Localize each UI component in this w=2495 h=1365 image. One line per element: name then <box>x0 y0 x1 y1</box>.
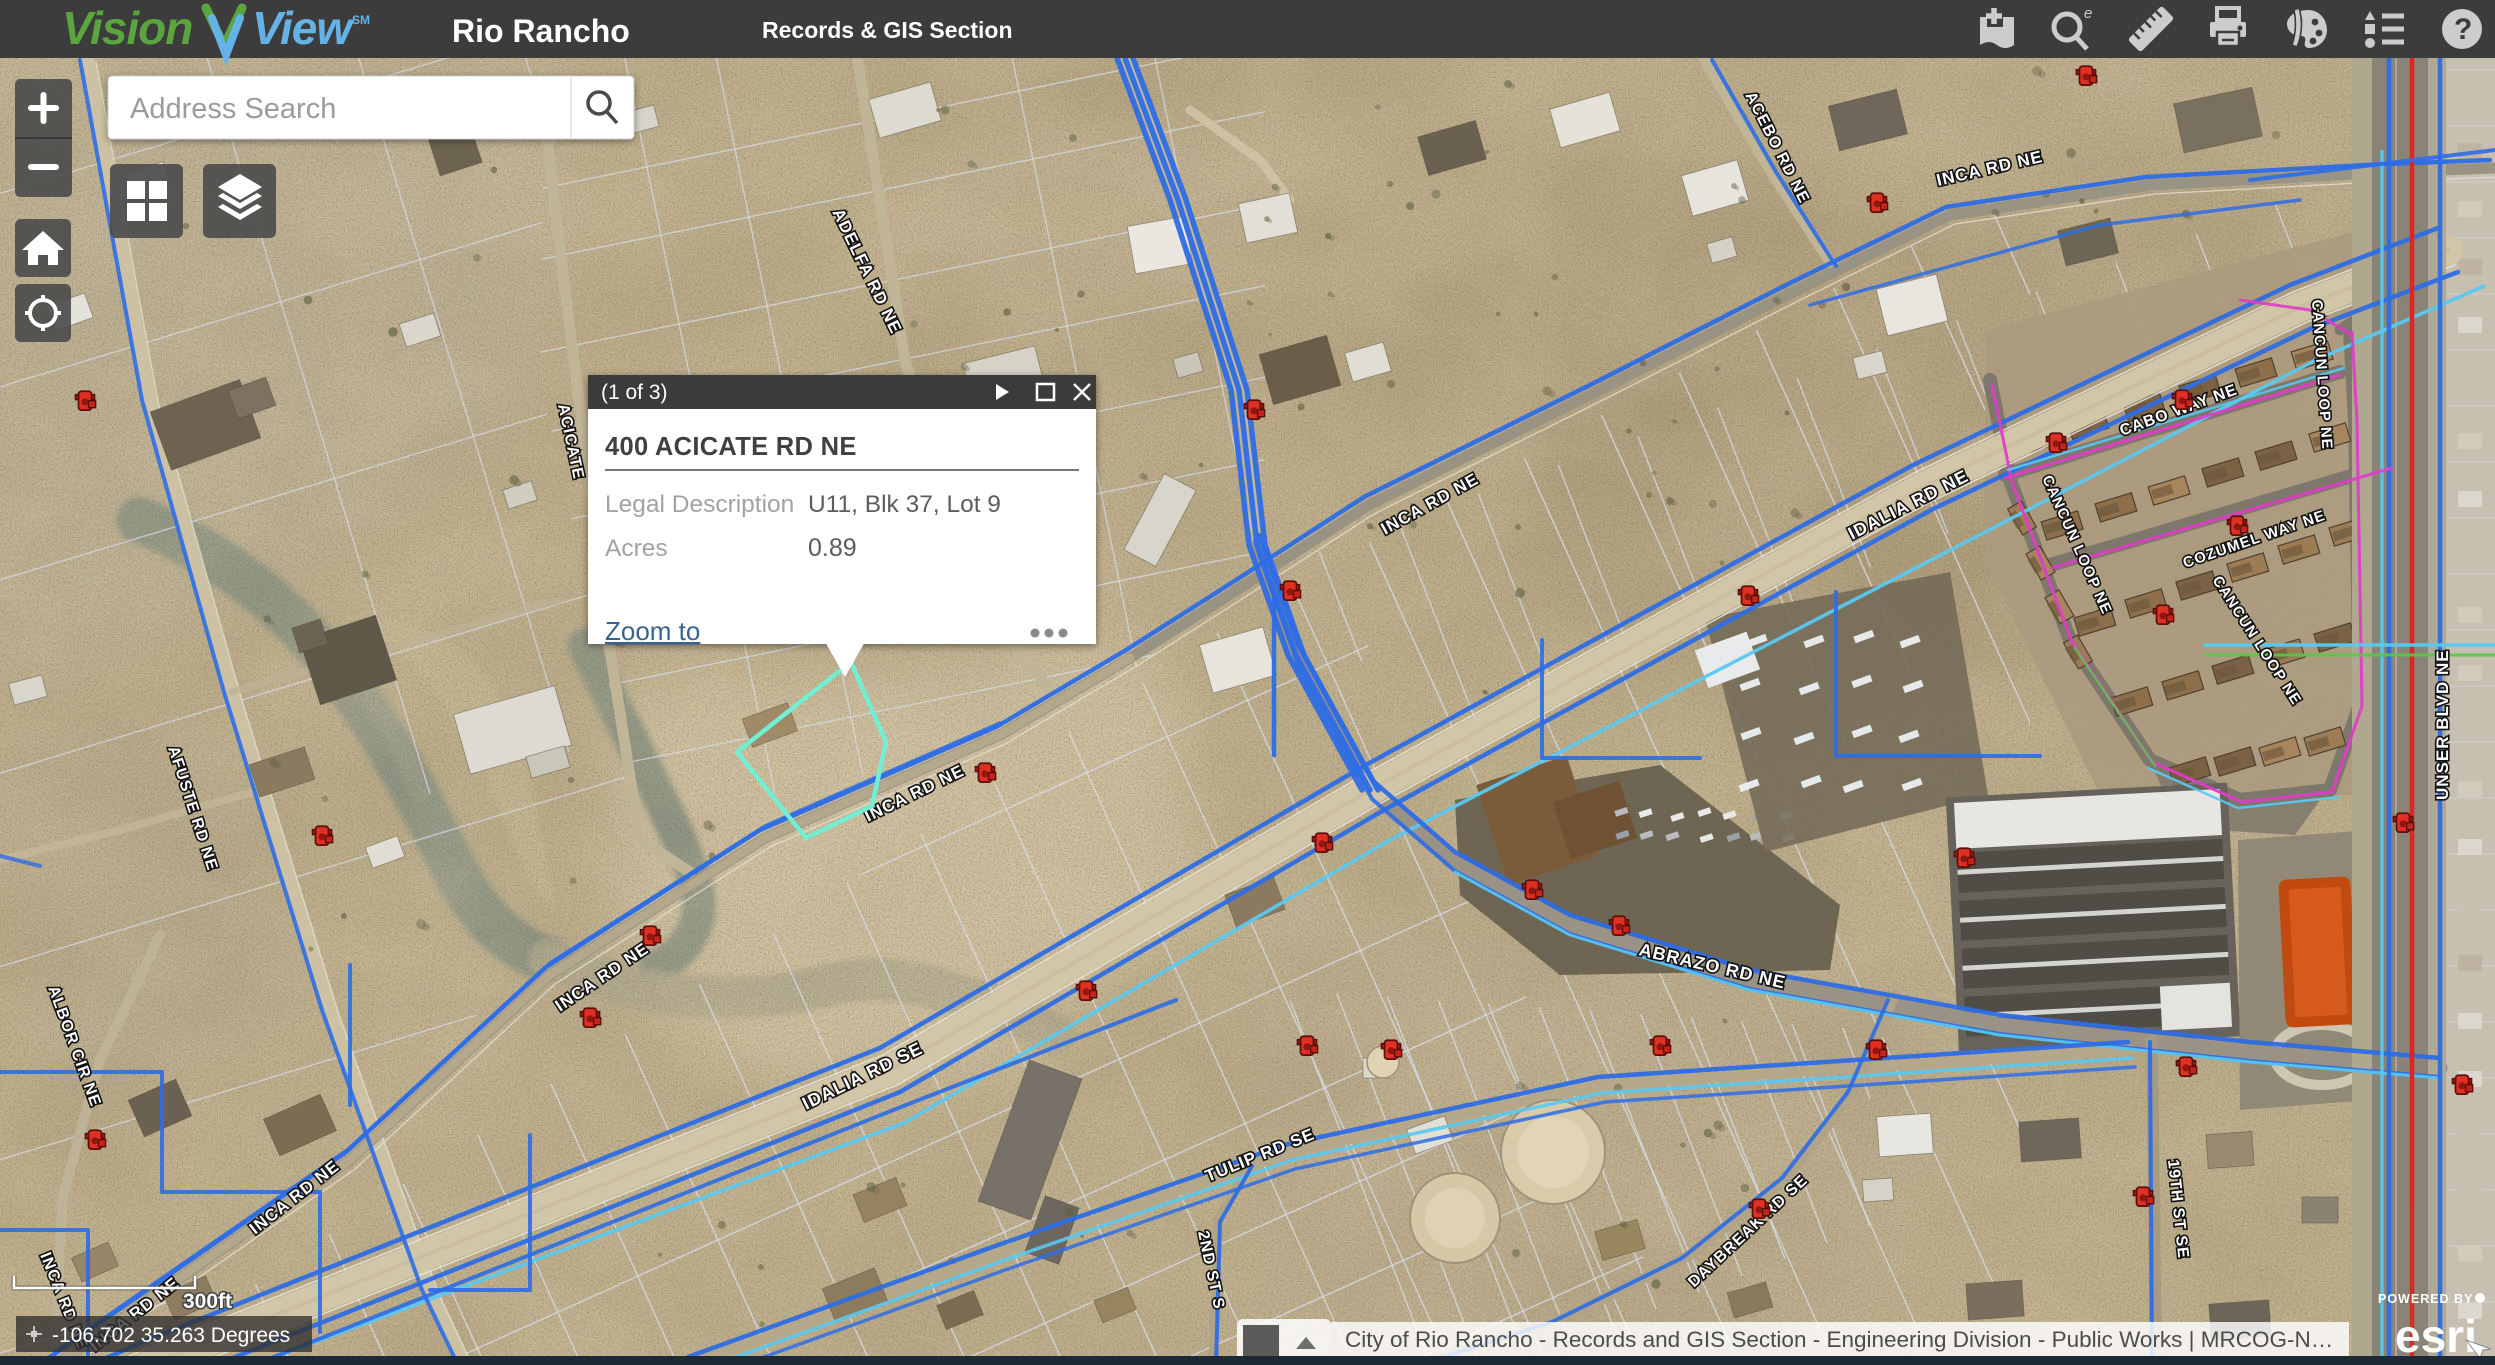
svg-text:(1 of 3): (1 of 3) <box>601 381 668 404</box>
svg-text:esri: esri <box>2395 1310 2477 1362</box>
svg-text:Vision: Vision <box>62 2 192 54</box>
svg-text:SM: SM <box>352 13 370 27</box>
svg-text:300ft: 300ft <box>183 1290 232 1313</box>
svg-text:City of Rio Rancho - Records a: City of Rio Rancho - Records and GIS Sec… <box>1345 1327 2333 1352</box>
svg-text:UNSER BLVD NE: UNSER BLVD NE <box>2433 649 2452 800</box>
svg-text:U11, Blk 37, Lot 9: U11, Blk 37, Lot 9 <box>808 491 1001 518</box>
svg-text:Zoom to: Zoom to <box>605 616 700 646</box>
svg-text:-106.702 35.263 Degrees: -106.702 35.263 Degrees <box>52 1324 290 1347</box>
svg-text:Legal Description: Legal Description <box>605 491 794 518</box>
svg-text:POWERED BY: POWERED BY <box>2378 1292 2473 1306</box>
svg-text:View: View <box>252 2 355 54</box>
svg-text:Records & GIS Section: Records & GIS Section <box>762 17 1013 43</box>
svg-text:Address Search: Address Search <box>130 93 336 125</box>
svg-text:?: ? <box>2454 13 2472 46</box>
svg-text:e: e <box>2084 5 2092 22</box>
svg-text:Acres: Acres <box>605 535 668 562</box>
svg-text:400 ACICATE RD NE: 400 ACICATE RD NE <box>605 433 857 461</box>
svg-text:Rio Rancho: Rio Rancho <box>452 13 630 49</box>
svg-text:0.89: 0.89 <box>808 534 857 562</box>
